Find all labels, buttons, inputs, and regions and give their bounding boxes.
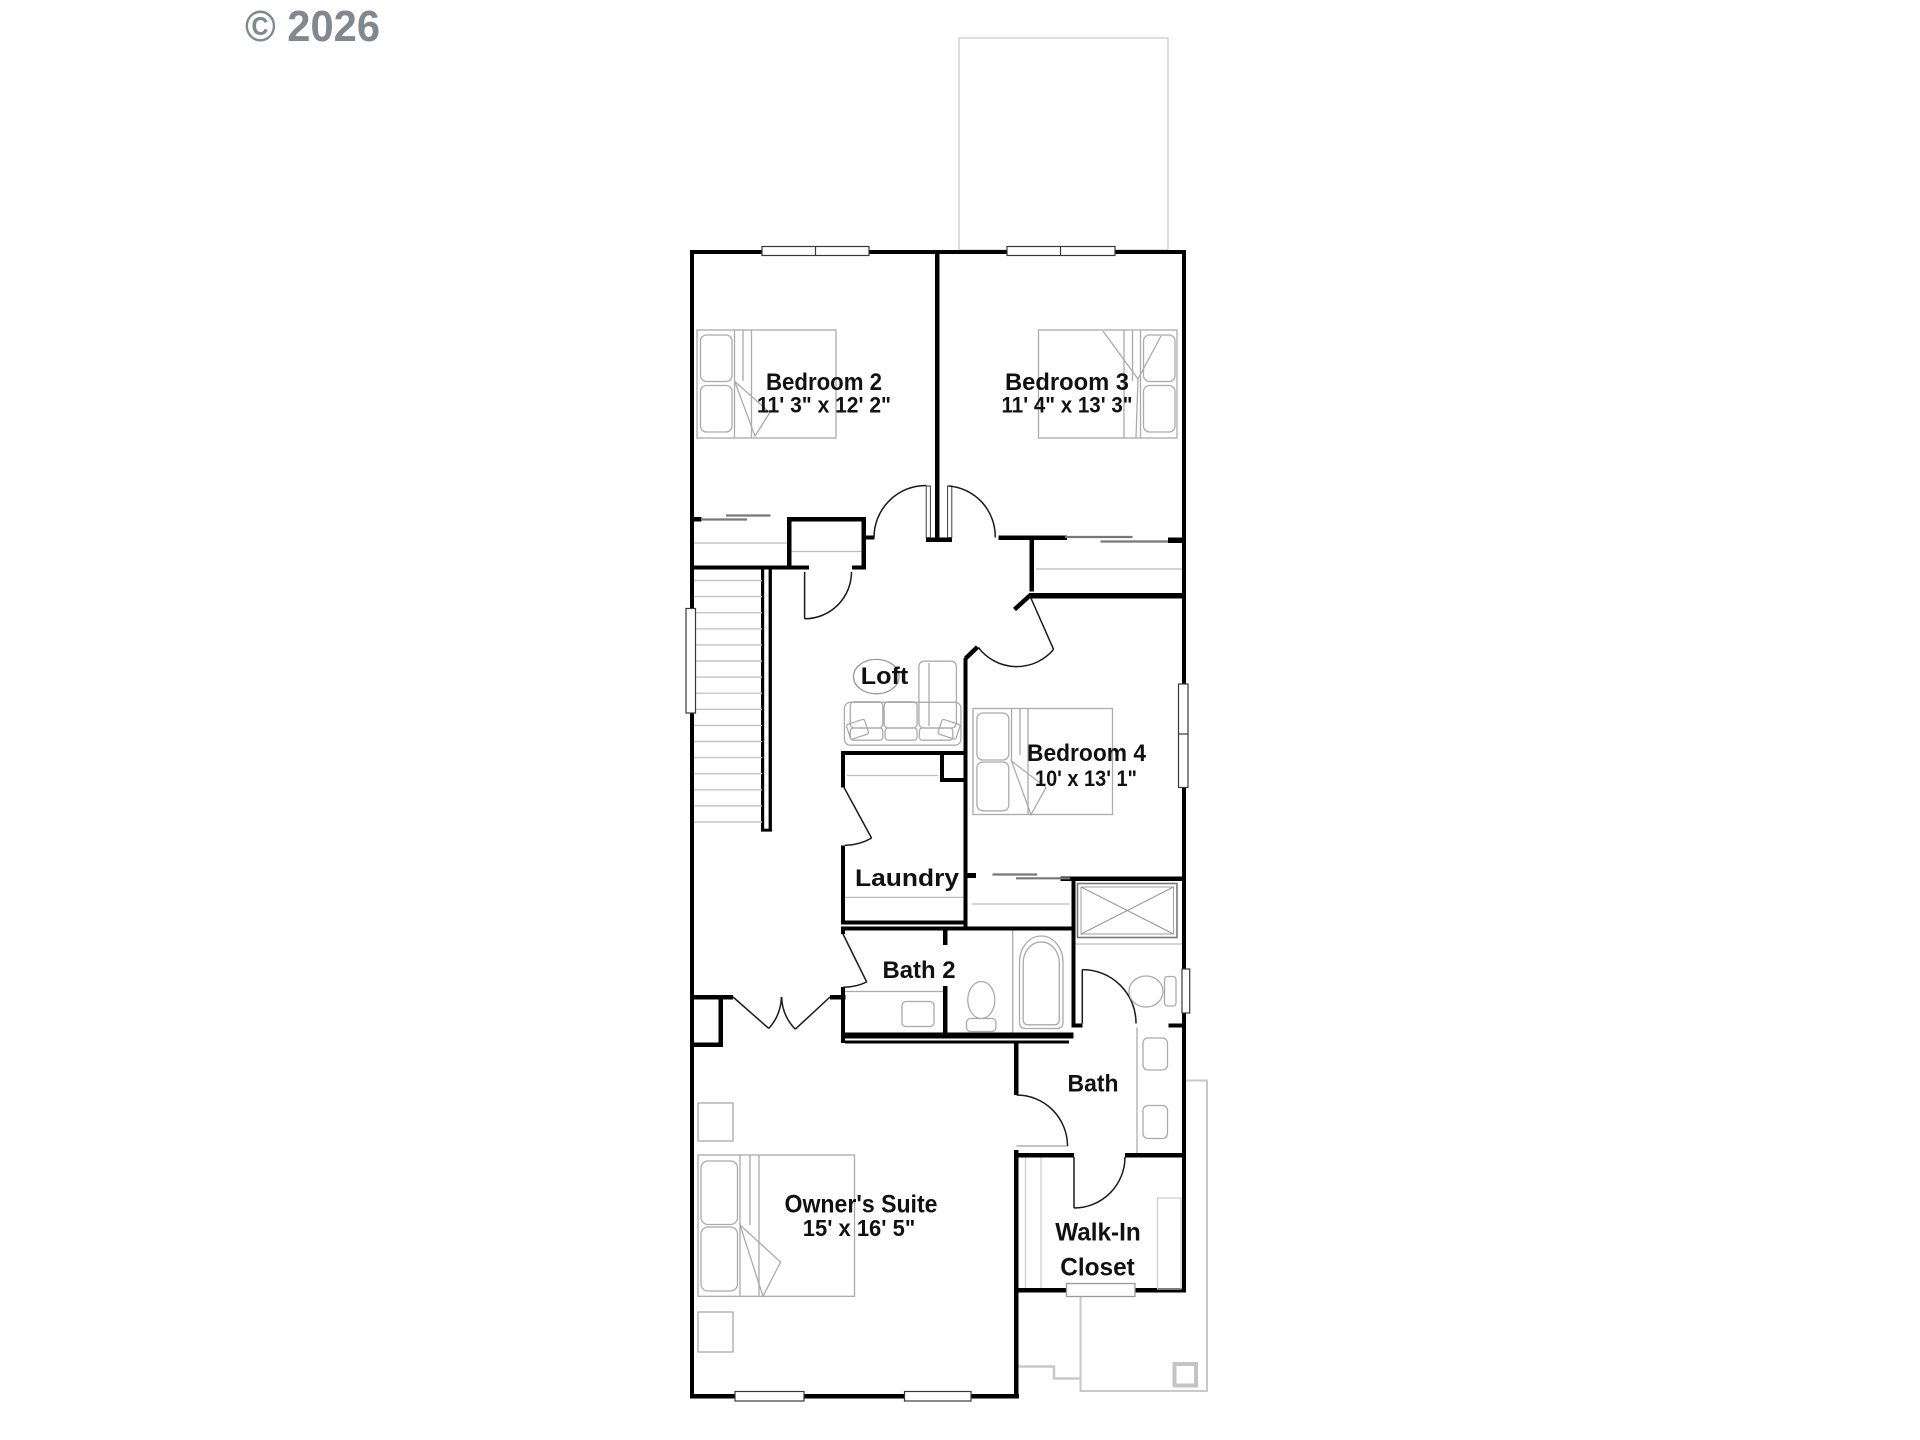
svg-text:Loft: Loft	[861, 663, 909, 690]
svg-text:Walk-In: Walk-In	[1055, 1219, 1141, 1247]
svg-text:Laundry: Laundry	[855, 865, 960, 892]
svg-text:11' 4" x 13' 3": 11' 4" x 13' 3"	[1002, 393, 1133, 418]
svg-text:Bath 2: Bath 2	[883, 957, 956, 984]
svg-text:Closet: Closet	[1060, 1254, 1135, 1282]
svg-text:Bath: Bath	[1068, 1071, 1119, 1098]
svg-text:© 2026: © 2026	[245, 2, 380, 51]
svg-text:11' 3" x 12' 2": 11' 3" x 12' 2"	[757, 393, 891, 418]
svg-text:15' x 16' 5": 15' x 16' 5"	[803, 1215, 916, 1241]
svg-text:Bedroom 4: Bedroom 4	[1027, 740, 1147, 767]
svg-text:10' x 13' 1": 10' x 13' 1"	[1035, 766, 1137, 791]
